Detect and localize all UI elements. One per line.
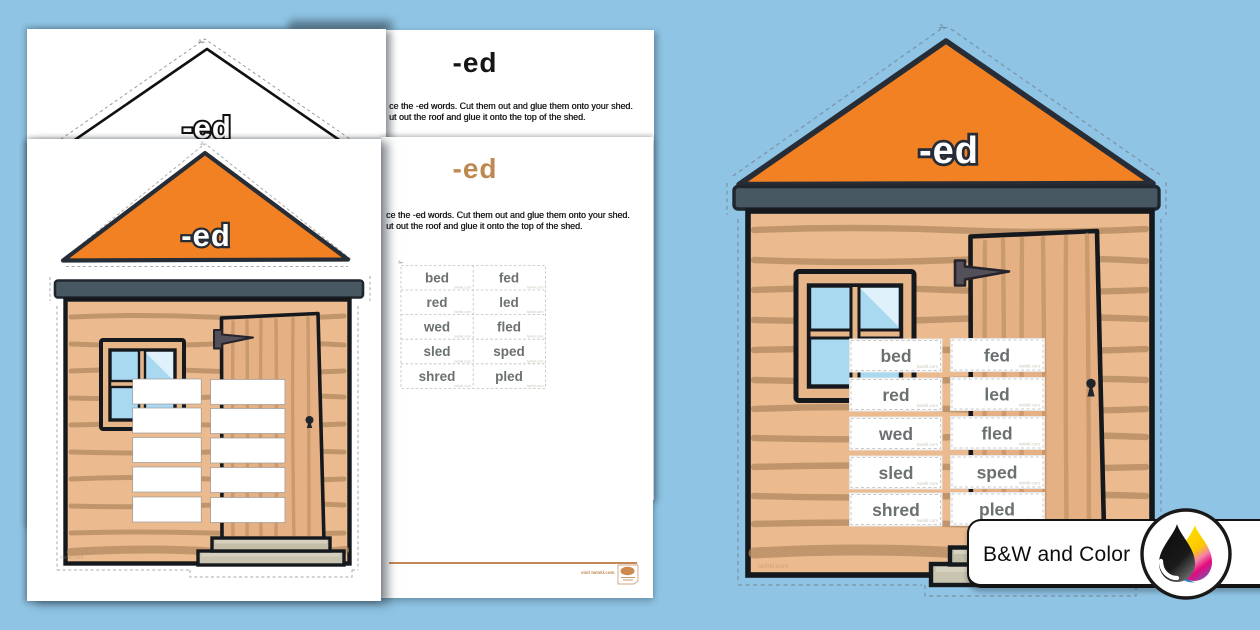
- svg-text:twinkl.com: twinkl.com: [454, 310, 471, 314]
- svg-text:bed: bed: [880, 346, 911, 366]
- svg-text:red: red: [882, 385, 909, 405]
- svg-text:fled: fled: [497, 320, 521, 335]
- svg-text:twinkl.com: twinkl.com: [454, 359, 471, 363]
- svg-text:fled: fled: [981, 424, 1012, 444]
- svg-text:shred: shred: [419, 369, 456, 384]
- svg-text:-ed: -ed: [919, 130, 979, 172]
- svg-text:twinkl.com: twinkl.com: [1019, 364, 1040, 369]
- svg-text:pled: pled: [979, 500, 1015, 520]
- svg-text:✁: ✁: [939, 22, 948, 34]
- svg-text:twinkl.com: twinkl.com: [1019, 442, 1040, 447]
- svg-text:sped: sped: [493, 344, 525, 359]
- svg-text:led: led: [499, 295, 519, 310]
- svg-text:twinkl.com: twinkl.com: [527, 286, 544, 290]
- svg-text:twinkl.com: twinkl.com: [60, 555, 83, 561]
- svg-text:twinkl.com: twinkl.com: [917, 403, 938, 408]
- svg-text:fed: fed: [499, 271, 519, 286]
- svg-text:sled: sled: [878, 463, 913, 483]
- svg-text:bed: bed: [425, 271, 449, 286]
- svg-text:twinkl.com: twinkl.com: [454, 335, 471, 339]
- svg-text:twinkl.com: twinkl.com: [1019, 481, 1040, 486]
- svg-text:shred: shred: [872, 500, 920, 520]
- svg-text:twinkl.com: twinkl.com: [454, 384, 471, 388]
- svg-text:twinkl.com: twinkl.com: [527, 335, 544, 339]
- svg-text:twinkl.com: twinkl.com: [527, 310, 544, 314]
- svg-text:twinkl.com: twinkl.com: [758, 563, 788, 570]
- svg-text:sped: sped: [977, 463, 1018, 483]
- svg-text:wed: wed: [423, 320, 450, 335]
- svg-text:twinkl.com: twinkl.com: [917, 364, 938, 369]
- svg-text:pled: pled: [495, 369, 523, 384]
- svg-text:led: led: [984, 385, 1009, 405]
- svg-text:sled: sled: [423, 344, 450, 359]
- svg-text:fed: fed: [984, 346, 1010, 366]
- svg-text:wed: wed: [878, 424, 913, 444]
- svg-text:✁: ✁: [200, 139, 208, 149]
- svg-text:twinkl.com: twinkl.com: [454, 286, 471, 290]
- svg-text:✁: ✁: [198, 37, 206, 47]
- svg-text:twinkl.com: twinkl.com: [917, 442, 938, 447]
- svg-text:twinkl.com: twinkl.com: [527, 359, 544, 363]
- svg-text:twinkl.com: twinkl.com: [1019, 403, 1040, 408]
- svg-text:twinkl.com: twinkl.com: [917, 481, 938, 486]
- svg-text:✁: ✁: [398, 260, 404, 267]
- svg-text:twinkl.com: twinkl.com: [917, 518, 938, 523]
- svg-text:-ed: -ed: [181, 218, 231, 253]
- svg-text:red: red: [426, 295, 447, 310]
- svg-text:twinkl.com: twinkl.com: [527, 384, 544, 388]
